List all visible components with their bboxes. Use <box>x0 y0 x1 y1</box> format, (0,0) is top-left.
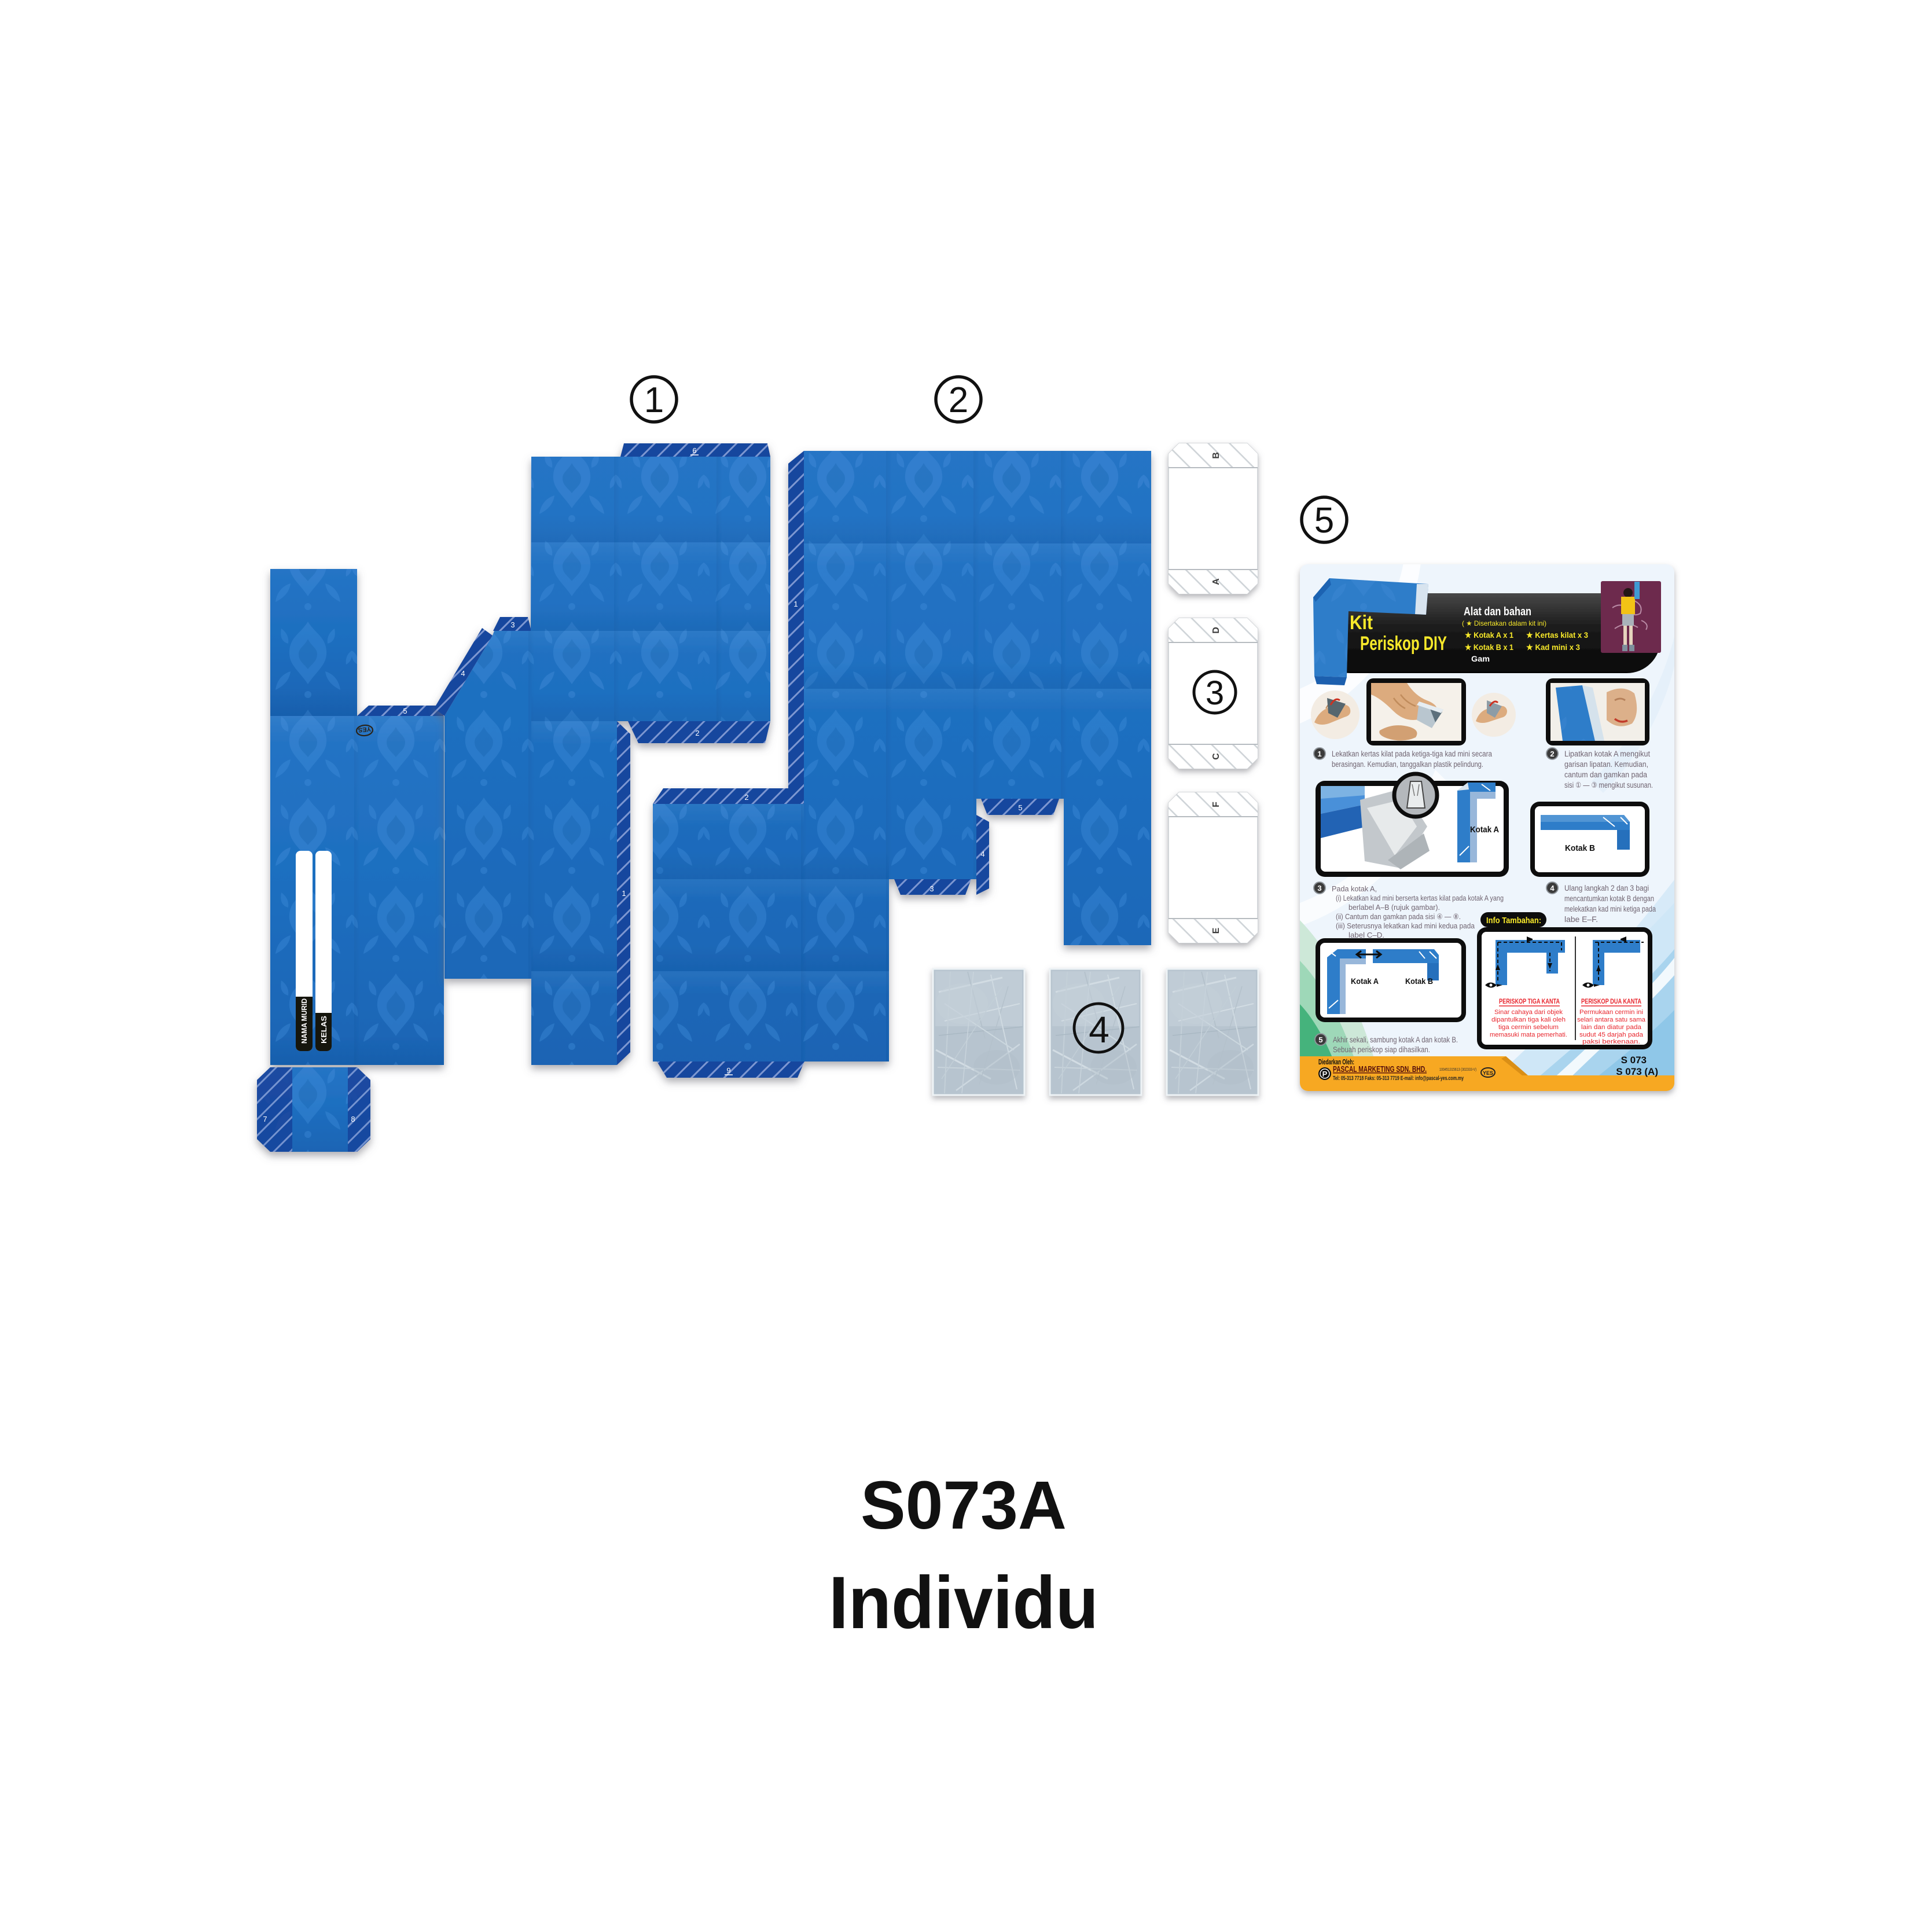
svg-text:berasingan. Kemudian, tanggalk: berasingan. Kemudian, tanggalkan plastik… <box>1332 760 1483 769</box>
svg-text:2: 2 <box>949 380 968 420</box>
svg-text:Sinar cahaya dari objek: Sinar cahaya dari objek <box>1494 1009 1563 1016</box>
svg-text:2: 2 <box>744 793 748 802</box>
svg-text:3: 3 <box>1317 884 1321 892</box>
svg-text:Tel: 05-313 7718 Faks: 05-31: Tel: 05-313 7718 Faks: 05-313 7719 E-mai… <box>1333 1075 1464 1082</box>
svg-text:★ Kotak B x 1: ★ Kotak B x 1 <box>1465 642 1513 652</box>
svg-text:mencantumkan kotak B dengan: mencantumkan kotak B dengan <box>1564 894 1654 903</box>
svg-text:lain dan diatur pada: lain dan diatur pada <box>1581 1024 1642 1031</box>
svg-text:cantum dan gamkan pada: cantum dan gamkan pada <box>1564 770 1647 779</box>
svg-text:Kotak A: Kotak A <box>1470 825 1499 835</box>
svg-text:Periskop DIY: Periskop DIY <box>1360 633 1447 655</box>
svg-text:5: 5 <box>1314 501 1334 541</box>
svg-text:memasuki mata pemerhati.: memasuki mata pemerhati. <box>1490 1031 1567 1038</box>
svg-text:6: 6 <box>692 446 696 455</box>
svg-text:E: E <box>1211 927 1221 934</box>
svg-text:tiga cermin sebelum: tiga cermin sebelum <box>1498 1024 1559 1031</box>
svg-text:5: 5 <box>1318 1035 1322 1044</box>
svg-text:4: 4 <box>1089 1009 1109 1051</box>
svg-text:5: 5 <box>403 707 407 715</box>
svg-text:YES: YES <box>358 725 371 733</box>
svg-text:S073A: S073A <box>861 1467 1067 1544</box>
svg-text:sudut 45 darjah pada: sudut 45 darjah pada <box>1579 1031 1644 1038</box>
svg-text:4: 4 <box>980 850 984 858</box>
svg-text:1: 1 <box>644 380 664 420</box>
svg-text:5: 5 <box>1018 803 1022 812</box>
svg-text:(iii) Seterusnya lekatkan kad: (iii) Seterusnya lekatkan kad mini kedua… <box>1336 921 1475 930</box>
svg-text:PASCAL MARKETING SDN. BHD.: PASCAL MARKETING SDN. BHD. <box>1333 1065 1427 1074</box>
svg-text:Kotak B: Kotak B <box>1565 843 1595 853</box>
svg-text:labe E–F.: labe E–F. <box>1564 915 1598 924</box>
svg-text:4: 4 <box>461 669 465 678</box>
svg-text:8: 8 <box>351 1115 355 1123</box>
svg-text:YES: YES <box>1483 1070 1493 1076</box>
svg-text:Pada kotak A,: Pada kotak A, <box>1332 884 1377 893</box>
svg-text:dipantulkan tiga kali oleh: dipantulkan tiga kali oleh <box>1491 1016 1566 1023</box>
svg-text:A: A <box>1211 578 1221 585</box>
svg-text:Kotak A: Kotak A <box>1351 976 1379 986</box>
svg-text:(ii) Cantum dan gamkan pada si: (ii) Cantum dan gamkan pada sisi ④ — ⑧. <box>1336 912 1461 921</box>
svg-text:1: 1 <box>1317 750 1321 758</box>
svg-text:Ulang langkah 2 dan 3 bagi: Ulang langkah 2 dan 3 bagi <box>1564 884 1649 892</box>
svg-text:(i) Lekatkan kad mini berserta: (i) Lekatkan kad mini berserta kertas ki… <box>1336 894 1504 902</box>
svg-text:1: 1 <box>793 600 798 608</box>
svg-text:Gam: Gam <box>1471 654 1490 663</box>
svg-text:Lekatkan kertas kilat pada ket: Lekatkan kertas kilat pada ketiga-tiga k… <box>1332 750 1492 758</box>
svg-text:B: B <box>1211 452 1221 459</box>
svg-text:Kotak B: Kotak B <box>1405 976 1433 986</box>
svg-text:C: C <box>1211 753 1221 760</box>
svg-text:2: 2 <box>1550 750 1554 758</box>
svg-text:sisi ① — ③ mengikut susunan.: sisi ① — ③ mengikut susunan. <box>1564 781 1653 789</box>
svg-text:KELAS: KELAS <box>320 1016 328 1044</box>
svg-text:S 073 (A): S 073 (A) <box>1616 1066 1658 1077</box>
svg-text:F: F <box>1211 802 1221 807</box>
svg-text:NAMA MURID: NAMA MURID <box>300 998 308 1044</box>
svg-text:P: P <box>1322 1070 1328 1078</box>
svg-text:Kit: Kit <box>1350 612 1373 634</box>
svg-text:Alat dan bahan: Alat dan bahan <box>1464 605 1531 618</box>
svg-text:( ★ Disertakan dalam kit ini): ( ★ Disertakan dalam kit ini) <box>1462 619 1546 627</box>
svg-text:D: D <box>1211 627 1221 634</box>
svg-text:selari antara satu sama: selari antara satu sama <box>1577 1016 1646 1023</box>
svg-text:Individu: Individu <box>829 1562 1098 1644</box>
svg-text:paksi berkenaan.: paksi berkenaan. <box>1582 1038 1640 1045</box>
svg-text:garisan lipatan. Kemudian,: garisan lipatan. Kemudian, <box>1564 760 1648 769</box>
svg-text:PERISKOP DUA KANTA: PERISKOP DUA KANTA <box>1581 997 1641 1005</box>
svg-text:4: 4 <box>1550 884 1555 892</box>
svg-text:Lipatkan kotak A mengikut: Lipatkan kotak A mengikut <box>1564 750 1650 758</box>
svg-text:3: 3 <box>1206 674 1224 712</box>
svg-text:3: 3 <box>929 884 934 893</box>
svg-text:S 073: S 073 <box>1621 1055 1647 1066</box>
svg-text:Sebuah periskop siap dihasilka: Sebuah periskop siap dihasilkan. <box>1333 1045 1430 1054</box>
svg-text:★ Kotak A x 1: ★ Kotak A x 1 <box>1465 630 1513 640</box>
svg-text:PERISKOP TIGA KANTA: PERISKOP TIGA KANTA <box>1499 997 1560 1005</box>
svg-text:★ Kad mini x 3: ★ Kad mini x 3 <box>1526 642 1580 652</box>
svg-text:★ Kertas kilat x 3: ★ Kertas kilat x 3 <box>1526 630 1588 640</box>
svg-text:7: 7 <box>263 1115 267 1123</box>
svg-text:100451315613 (302333-V): 100451315613 (302333-V) <box>1439 1067 1476 1072</box>
svg-text:label C–D.: label C–D. <box>1349 931 1384 939</box>
svg-text:1: 1 <box>622 889 626 898</box>
svg-text:berlabel A–B (rujuk gambar).: berlabel A–B (rujuk gambar). <box>1349 903 1440 912</box>
svg-text:3: 3 <box>510 620 515 629</box>
svg-text:2: 2 <box>695 729 699 737</box>
svg-text:melekatkan kad mini ketiga pad: melekatkan kad mini ketiga pada <box>1564 905 1656 913</box>
svg-text:Akhir sekali, sambung kotak A: Akhir sekali, sambung kotak A dan kotak … <box>1333 1035 1458 1044</box>
svg-text:Permukaan cermin ini: Permukaan cermin ini <box>1579 1009 1643 1016</box>
svg-text:9: 9 <box>726 1066 730 1075</box>
svg-text:Info Tambahan:: Info Tambahan: <box>1486 916 1541 925</box>
